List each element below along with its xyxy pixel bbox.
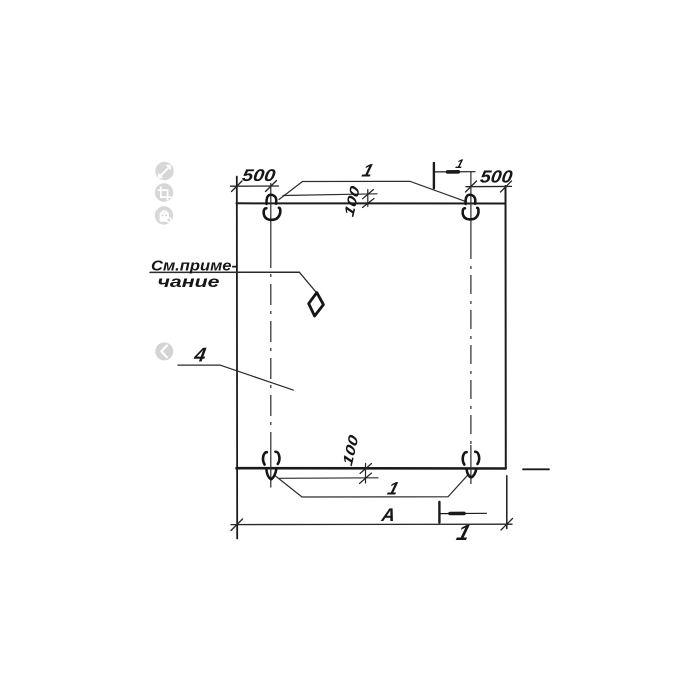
svg-text:чание: чание (158, 274, 221, 291)
svg-text:500: 500 (479, 167, 514, 187)
svg-text:А: А (379, 504, 396, 525)
svg-text:См.приме-: См.приме- (151, 259, 237, 275)
svg-text:500: 500 (241, 166, 277, 185)
